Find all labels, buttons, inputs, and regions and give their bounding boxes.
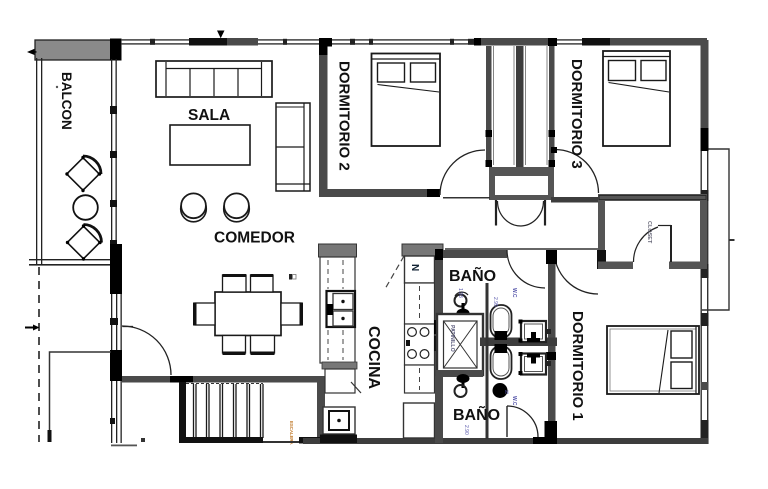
svg-text:W.C: W.C <box>511 288 517 298</box>
svg-text:1.93: 1.93 <box>457 288 463 298</box>
svg-text:DORMITORIO 3: DORMITORIO 3 <box>568 59 585 169</box>
svg-text:PATINILLO: PATINILLO <box>449 325 455 352</box>
svg-text:COMEDOR: COMEDOR <box>214 230 295 247</box>
svg-text:CLOSET: CLOSET <box>646 221 652 244</box>
svg-text:2.95: 2.95 <box>492 297 498 307</box>
svg-text:BAÑO: BAÑO <box>453 404 500 424</box>
svg-text:2.90: 2.90 <box>463 425 469 435</box>
svg-text:COCINA: COCINA <box>365 326 382 390</box>
svg-text:DORMITORIO 1: DORMITORIO 1 <box>569 311 586 421</box>
svg-text:N: N <box>409 264 420 271</box>
svg-text:DORMITORIO 2: DORMITORIO 2 <box>336 61 353 171</box>
svg-text:BALCON: BALCON <box>59 72 74 130</box>
svg-text:N: N <box>505 390 509 396</box>
svg-text:W.C: W.C <box>511 396 517 406</box>
svg-text:SALA: SALA <box>188 107 230 124</box>
svg-text:BAÑO: BAÑO <box>449 265 496 285</box>
